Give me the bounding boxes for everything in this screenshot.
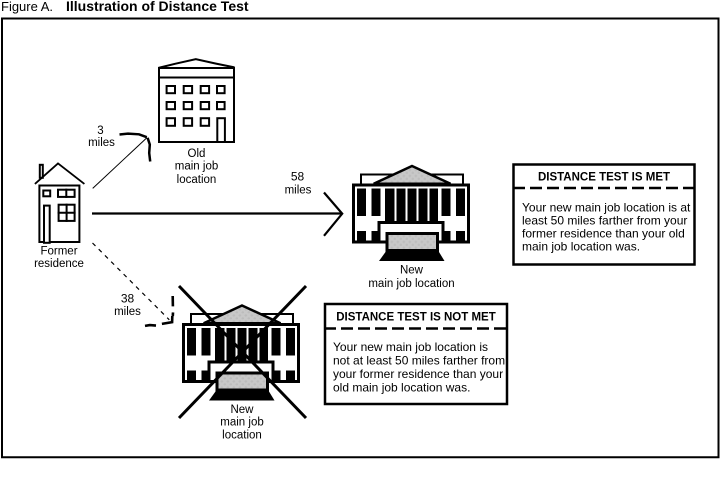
svg-text:main job: main job	[175, 161, 218, 173]
svg-text:3: 3	[97, 125, 103, 137]
svg-text:main job location: main job location	[368, 278, 454, 290]
svg-text:residence: residence	[34, 258, 84, 270]
svg-text:New: New	[230, 404, 254, 416]
svg-text:main job: main job	[220, 417, 263, 429]
svg-text:New: New	[400, 265, 424, 277]
svg-text:old main job location was.: old main job location was.	[333, 381, 470, 395]
svg-text:Illustration of Distance Test: Illustration of Distance Test	[66, 0, 249, 14]
svg-text:Former: Former	[40, 246, 77, 258]
svg-text:Figure A.: Figure A.	[1, 0, 53, 14]
svg-text:location: location	[177, 174, 217, 186]
svg-text:location: location	[222, 430, 262, 442]
svg-text:Old: Old	[188, 148, 206, 160]
svg-text:least 50 miles farther from yo: least 50 miles farther from your	[522, 214, 687, 228]
svg-text:miles: miles	[114, 306, 141, 318]
svg-text:former residence than your old: former residence than your old	[522, 227, 685, 241]
svg-text:38: 38	[121, 292, 135, 306]
svg-text:your former residence than you: your former residence than your	[333, 367, 503, 381]
svg-text:DISTANCE TEST IS MET: DISTANCE TEST IS MET	[538, 172, 670, 184]
svg-text:DISTANCE TEST IS NOT MET: DISTANCE TEST IS NOT MET	[336, 312, 496, 324]
svg-text:not at least 50 miles farther: not at least 50 miles farther from	[333, 354, 505, 368]
svg-text:miles: miles	[88, 137, 115, 149]
svg-text:miles: miles	[285, 185, 312, 197]
svg-text:Your new main job location is: Your new main job location is at	[522, 201, 691, 215]
svg-text:58: 58	[291, 170, 305, 184]
svg-text:main job location was.: main job location was.	[522, 240, 640, 254]
svg-text:Your new main job location is: Your new main job location is	[333, 340, 488, 354]
